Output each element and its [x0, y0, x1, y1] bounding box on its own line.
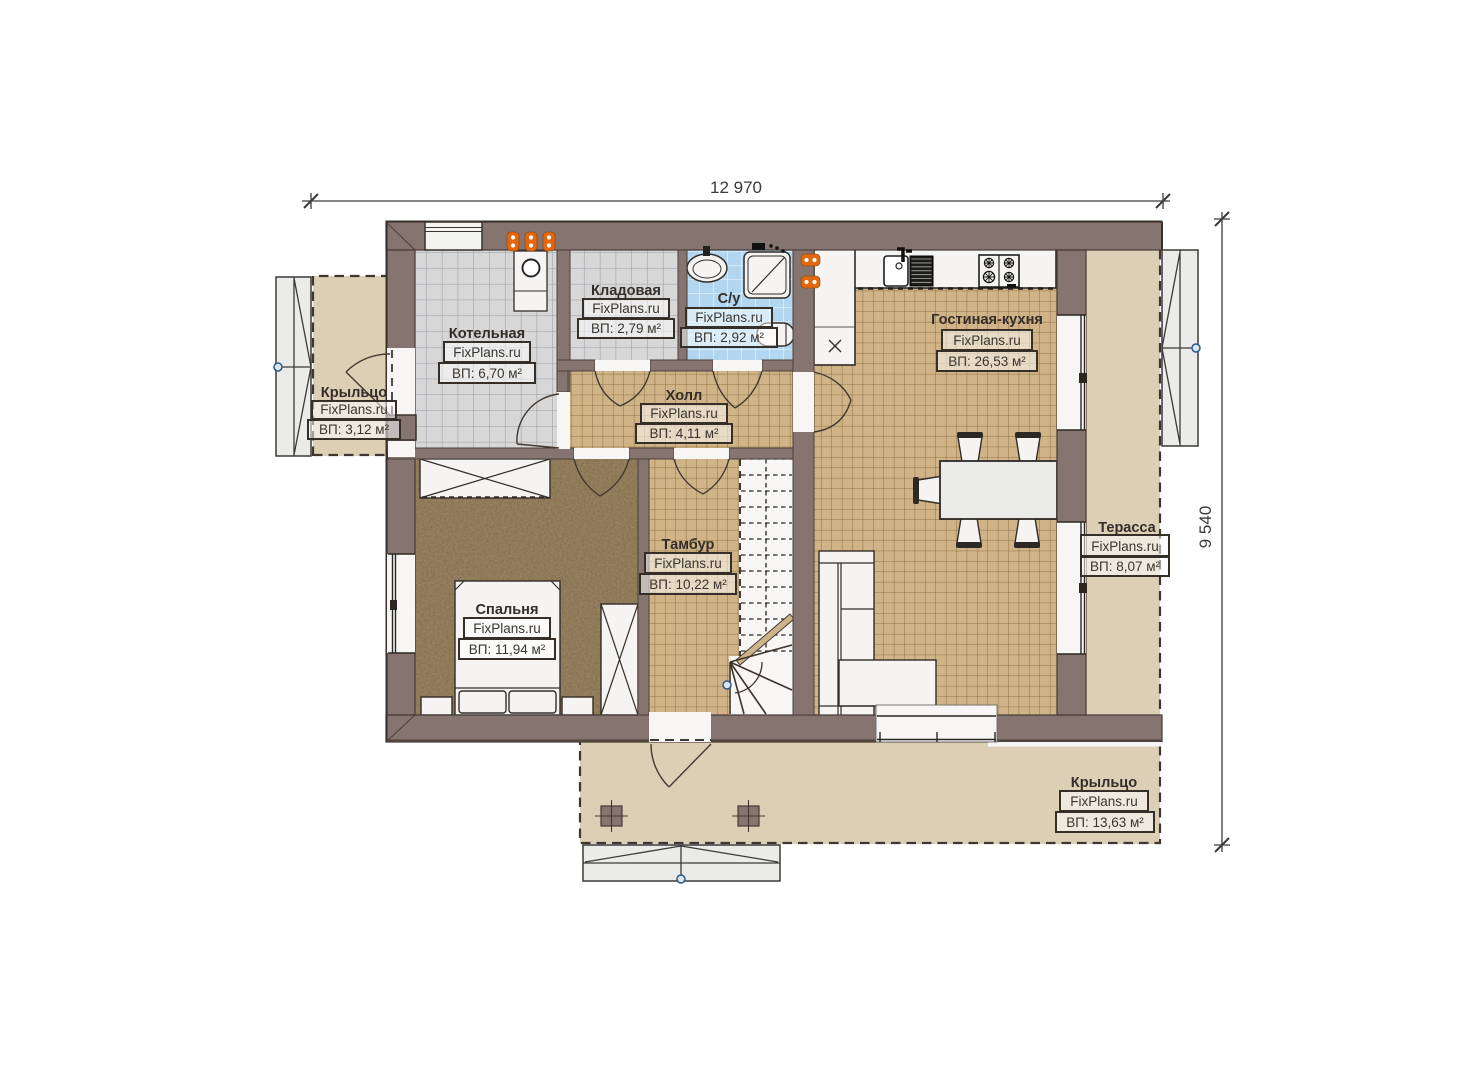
svg-text:ВП: 11,94 м²: ВП: 11,94 м²	[469, 642, 546, 657]
svg-text:FixPlans.ru: FixPlans.ru	[695, 310, 763, 325]
svg-text:Тамбур: Тамбур	[662, 537, 715, 553]
svg-text:FixPlans.ru: FixPlans.ru	[592, 301, 660, 316]
svg-text:Котельная: Котельная	[449, 326, 525, 342]
svg-text:Крыльцо: Крыльцо	[1071, 775, 1137, 791]
svg-text:ВП: 8,07 м²: ВП: 8,07 м²	[1090, 559, 1161, 574]
svg-text:ВП: 6,70 м²: ВП: 6,70 м²	[452, 366, 523, 381]
svg-text:Терасса: Терасса	[1098, 520, 1156, 536]
svg-text:Крыльцо: Крыльцо	[321, 385, 387, 401]
svg-text:ВП: 2,79 м²: ВП: 2,79 м²	[591, 321, 662, 336]
svg-text:FixPlans.ru: FixPlans.ru	[1070, 794, 1138, 809]
svg-text:FixPlans.ru: FixPlans.ru	[650, 406, 718, 421]
svg-text:FixPlans.ru: FixPlans.ru	[654, 556, 722, 571]
svg-text:Кладовая: Кладовая	[591, 283, 661, 299]
svg-text:12 970: 12 970	[710, 178, 762, 197]
svg-text:ВП: 26,53 м²: ВП: 26,53 м²	[948, 354, 1026, 369]
svg-text:FixPlans.ru: FixPlans.ru	[453, 345, 521, 360]
svg-text:ВП: 10,22 м²: ВП: 10,22 м²	[649, 577, 727, 592]
svg-text:Холл: Холл	[666, 388, 703, 404]
svg-text:9 540: 9 540	[1196, 506, 1215, 549]
svg-text:FixPlans.ru: FixPlans.ru	[1091, 539, 1159, 554]
svg-text:Гостиная-кухня: Гостиная-кухня	[931, 312, 1043, 328]
svg-text:ВП: 4,11 м²: ВП: 4,11 м²	[649, 426, 719, 441]
svg-text:FixPlans.ru: FixPlans.ru	[953, 333, 1021, 348]
svg-text:ВП: 3,12 м²: ВП: 3,12 м²	[319, 422, 390, 437]
svg-text:FixPlans.ru: FixPlans.ru	[320, 402, 388, 417]
svg-text:ВП: 2,92 м²: ВП: 2,92 м²	[694, 330, 765, 345]
svg-text:ВП: 13,63 м²: ВП: 13,63 м²	[1066, 815, 1144, 830]
svg-text:Спальня: Спальня	[475, 602, 538, 618]
svg-text:С/у: С/у	[718, 291, 742, 307]
svg-text:FixPlans.ru: FixPlans.ru	[473, 621, 541, 636]
